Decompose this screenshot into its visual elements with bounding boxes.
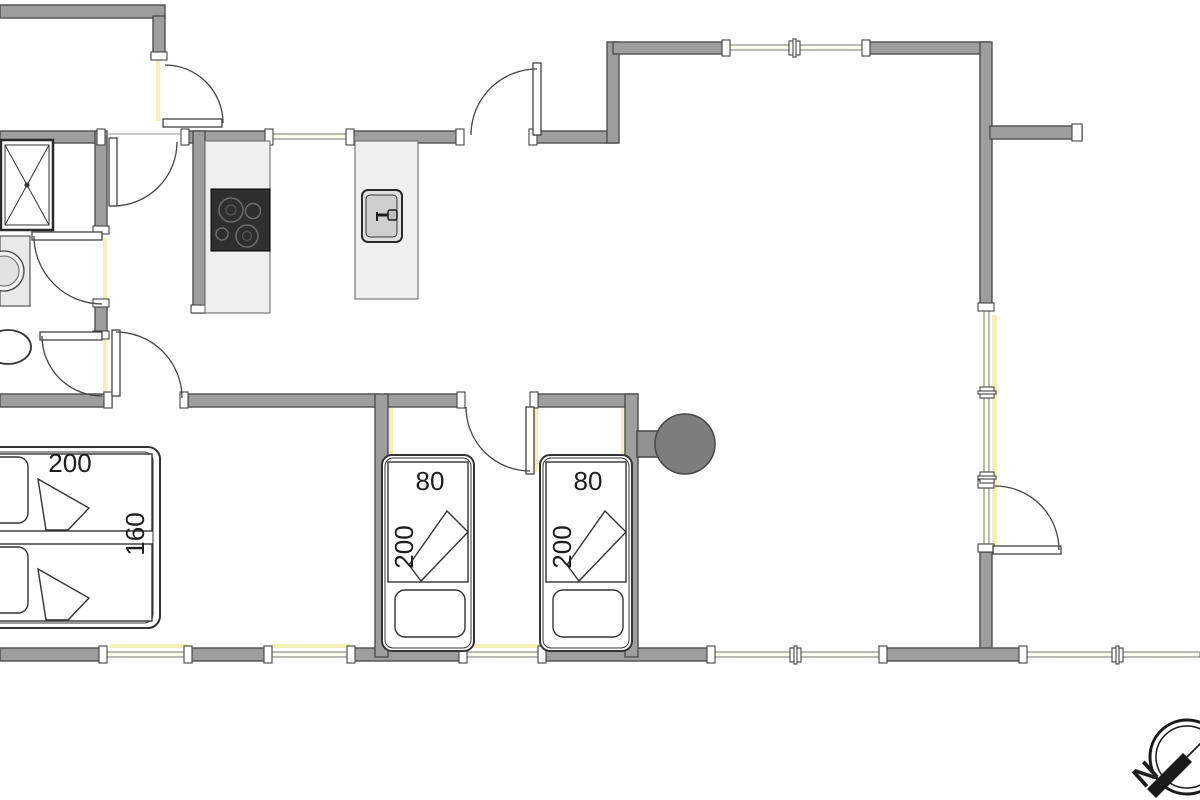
- toilet: [0, 330, 31, 364]
- single-bed-1-width-label: 80: [405, 468, 455, 494]
- shower: [1, 140, 53, 230]
- floor-plan: 200 160 80 200 80 200 N: [0, 0, 1200, 800]
- single-bed-2-length-label: 200: [549, 523, 575, 571]
- single-bed-1-length-label: 200: [391, 523, 417, 571]
- kitchen-cooktop: [211, 189, 270, 251]
- double-bed-width-label: 160: [122, 510, 148, 558]
- single-bed-2-width-label: 80: [563, 468, 613, 494]
- wood-stove: [637, 414, 715, 474]
- floor-plan-svg: [0, 0, 1200, 800]
- washbasin: [0, 236, 30, 306]
- double-bed-length-label: 200: [46, 450, 94, 476]
- island-sink: [362, 190, 402, 242]
